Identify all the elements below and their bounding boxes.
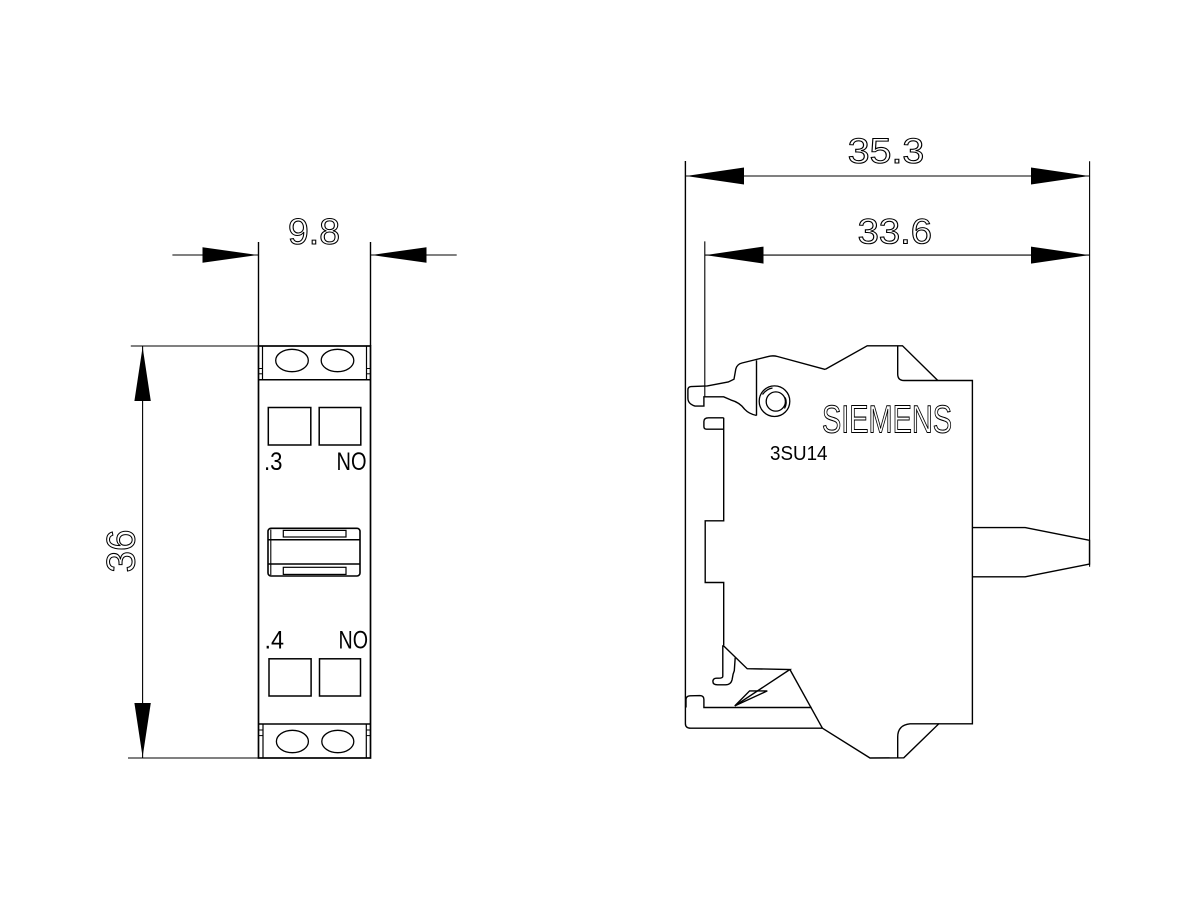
- svg-text:36: 36: [100, 530, 144, 573]
- svg-text:.3: .3: [264, 448, 283, 476]
- svg-text:.4: .4: [265, 627, 285, 655]
- svg-text:33.6: 33.6: [858, 212, 932, 251]
- svg-text:SIEMENS: SIEMENS: [822, 399, 952, 442]
- svg-text:NO: NO: [339, 627, 369, 655]
- svg-text:NO: NO: [337, 448, 367, 476]
- svg-text:3SU14: 3SU14: [770, 442, 828, 465]
- svg-text:9.8: 9.8: [288, 211, 340, 252]
- svg-text:35.3: 35.3: [848, 132, 924, 171]
